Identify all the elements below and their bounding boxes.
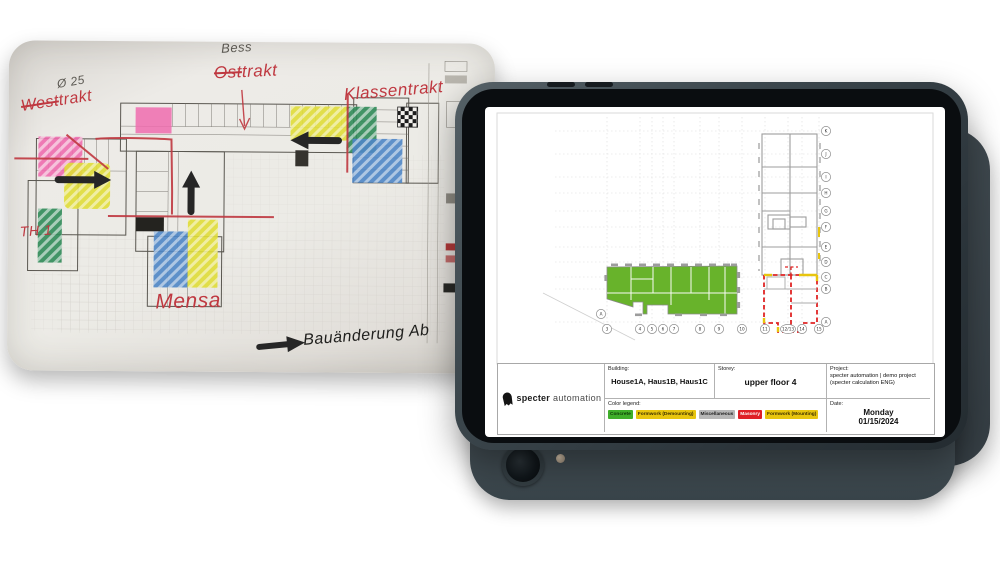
ghost-icon [501,390,514,407]
th-note: TH 1 [19,221,52,239]
building-haus1b [759,134,820,332]
axis-bubble: A [821,317,830,326]
axis-bubble: D [821,257,830,266]
legend-chip-miscellaneous: Miscellaneous [699,410,736,419]
axis-bubble: 3 [602,324,611,333]
svg-text:C: C [825,275,828,280]
svg-text:D: D [824,260,827,265]
axis-bubble: 15 [814,324,823,333]
axis-bubble: C [821,272,830,281]
axis-bubble: H [821,188,830,197]
building-house1a [604,264,740,317]
svg-text:12/13: 12/13 [782,327,794,332]
svg-text:E: E [825,245,828,250]
legend-chip-formwork-demounting: Formwork (Demounting) [636,410,696,419]
svg-text:10: 10 [739,327,745,332]
axis-bubble: 4 [635,324,644,333]
axis-bubble: B [821,284,830,293]
project-label: Project: [830,366,849,372]
storey-value: upper floor 4 [715,377,826,387]
tablet-screen: KJIHGFEDCBA3456789101112/131415A specter… [485,107,945,437]
east-wing-struck: Ost [214,62,243,82]
east-wing-rest: trakt [241,61,277,82]
legend-chip-masonry: Masonry [738,410,762,419]
axis-bubble: I [821,172,830,181]
pencil-note-top: Bess [221,40,253,56]
legend-chip-concrete: Concrete [608,410,633,419]
volume-button[interactable] [547,82,575,87]
brand-name: specter [517,393,550,403]
axis-bubble: E [821,242,830,251]
scanned-floorplan-paper: Bess Osttrakt Ø 25 Westtrakt Klassentrak… [7,40,495,373]
svg-text:K: K [825,129,828,134]
axis-bubble: J [821,149,830,158]
svg-text:14: 14 [799,327,805,332]
svg-text:6: 6 [662,327,665,332]
svg-text:8: 8 [699,327,702,332]
building-field: Building: House1A, Haus1B, Haus1C [604,364,714,398]
axis-bubble: A [596,309,605,318]
axis-bubble: 7 [669,324,678,333]
axis-bubble: 14 [797,324,806,333]
svg-text:I: I [825,175,826,180]
axis-bubble: 10 [737,324,746,333]
axis-bubble: K [821,126,830,135]
date-label: Date: [830,401,843,407]
svg-text:9: 9 [718,327,721,332]
svg-text:11: 11 [762,327,768,332]
date-value: 01/15/2024 [827,417,930,426]
storey-label: Storey: [718,366,735,372]
axis-bubble: 11 [760,324,769,333]
svg-text:4: 4 [639,327,642,332]
paper-grid [31,272,121,331]
volume-button[interactable] [585,82,613,87]
axis-bubble: G [821,206,830,215]
mensa-label: Mensa [155,289,221,315]
axis-bubble: 5 [647,324,656,333]
east-wing-label: Osttrakt [214,61,278,84]
axis-bubble: 6 [658,324,667,333]
axis-bubble: F [821,222,830,231]
tablet-device: KJIHGFEDCBA3456789101112/131415A specter… [455,82,968,450]
svg-text:G: G [824,209,827,214]
specter-logo: specterautomation [498,364,604,432]
svg-text:A: A [600,312,603,317]
floorplan-canvas[interactable]: KJIHGFEDCBA3456789101112/131415A [485,107,945,365]
building-value: House1A, Haus1B, Haus1C [605,377,714,386]
legend-chip-formwork-mounting: Formwork (Mounting) [765,410,818,419]
project-field: Project: specter automation | demo proje… [826,364,930,398]
title-block: specterautomation Building: House1A, Hau… [497,363,935,435]
legend-chips: Concrete Formwork (Demounting) Miscellan… [608,410,826,419]
axis-bubble: 9 [714,324,723,333]
legend-label: Color legend: [608,401,641,407]
svg-text:15: 15 [816,327,822,332]
svg-text:A: A [825,320,828,325]
svg-text:B: B [825,287,828,292]
date-field: Date: Monday 01/15/2024 [826,398,930,432]
svg-text:7: 7 [673,327,676,332]
date-day: Monday [827,408,930,417]
paper-grid [226,154,445,234]
camera-lens [502,444,544,486]
tablet-bezel: KJIHGFEDCBA3456789101112/131415A specter… [462,89,961,443]
storey-field: Storey: upper floor 4 [714,364,826,398]
svg-text:3: 3 [606,327,609,332]
svg-text:J: J [824,152,826,157]
building-label: Building: [608,366,629,372]
svg-text:H: H [824,191,827,196]
west-wing-rest: trakt [58,87,94,109]
axis-bubble: 12/13 [781,324,796,333]
axis-bubble: 8 [695,324,704,333]
svg-text:5: 5 [651,327,654,332]
color-legend: Color legend: Concrete Formwork (Demount… [604,398,826,432]
camera-flash [556,454,565,463]
brand-suffix: automation [553,393,602,403]
